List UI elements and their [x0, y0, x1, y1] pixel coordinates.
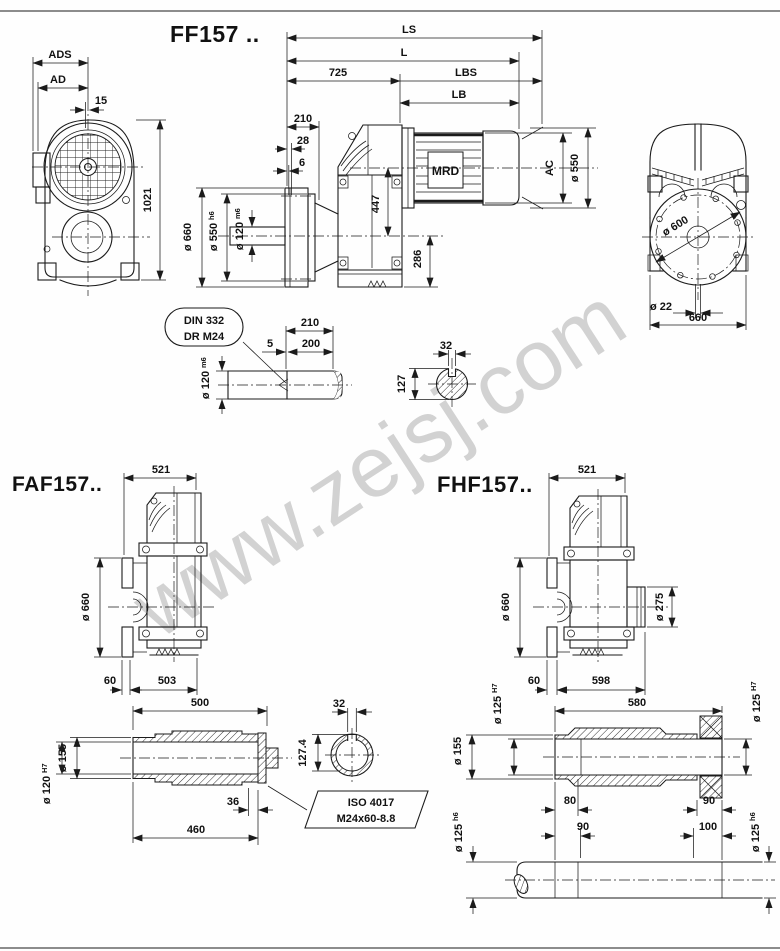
dim-80: 80 [564, 795, 576, 807]
gearbox-dimension-drawing: www.zejsj.com FF157 .. FAF157.. FHF157..… [0, 0, 780, 951]
fhf-dimensions: 521 ø 660 ø 275 60 598 [500, 464, 678, 695]
callout-m24x60: M24x60-8.8 [337, 813, 396, 825]
dim-1021: 1021 [142, 188, 154, 212]
callout-iso4017: ISO 4017 [348, 797, 394, 809]
dim-6: 6 [299, 157, 305, 169]
dim-550h6-suffix: h6 [207, 211, 216, 220]
dim-598: 598 [592, 675, 610, 687]
dim-125h7-right-suffix: H7 [749, 681, 758, 691]
dim-120m6-suffix: m6 [233, 208, 242, 219]
dim-32-faf: 32 [333, 698, 345, 710]
motor: MRD [350, 127, 598, 209]
dim-660: ø 660 [182, 223, 194, 251]
dim-286: 286 [412, 250, 424, 268]
dim-660-width: 660 [689, 312, 707, 324]
dim-lb: LB [452, 89, 467, 101]
dim-125h6-left: ø 125 [453, 824, 465, 852]
dim-36: 36 [227, 796, 239, 808]
dim-503: 503 [158, 675, 176, 687]
motor-brand-label: MRD [432, 164, 460, 178]
dim-155-fhf: ø 155 [452, 737, 464, 765]
fhf-view: 521 ø 660 ø 275 60 598 [500, 464, 678, 695]
dim-lbs: LBS [455, 67, 477, 79]
dim-22: ø 22 [650, 301, 672, 313]
dim-125h6-left-suffix: h6 [451, 812, 460, 821]
faf-shaft-dimensions: 500 ø 155 ø 120 H7 36 460 [40, 697, 273, 845]
title-ff157: FF157 .. [170, 21, 260, 47]
dim-5: 5 [267, 338, 273, 350]
faf-key-section: 32 127.4 [297, 698, 379, 782]
ff-side-view: MRD LS L 725 LBS LB 210 28 6 [182, 24, 598, 287]
dim-275: ø 275 [654, 593, 666, 621]
output-flange [285, 188, 308, 287]
machine-shaft: ø 125 h6 ø 125 h6 [451, 812, 776, 914]
dim-ads: ADS [48, 49, 71, 61]
dim-210: 210 [294, 113, 312, 125]
fhf-shaft-detail: 580 ø 125 H7 ø 155 ø 125 H7 80 90 [451, 681, 776, 914]
dim-120h7: ø 120 [41, 776, 53, 804]
title-fhf157: FHF157.. [437, 472, 533, 497]
dim-120m6: ø 120 [234, 222, 246, 250]
fhf-flange-bottom [547, 627, 557, 657]
rear-view: ø 600 ø 22 660 [642, 124, 755, 330]
dim-90-upper: 90 [703, 795, 715, 807]
fhf-shaft-dimensions: 580 ø 125 H7 ø 155 ø 125 H7 80 90 [452, 681, 763, 860]
callout-din332: DIN 332 [184, 315, 224, 327]
faf-view: 521 ø 660 60 503 [80, 464, 215, 695]
dim-660-fhf: ø 660 [500, 593, 512, 621]
dim-125h7-right: ø 125 [751, 694, 763, 722]
dim-l: L [401, 47, 408, 59]
dim-125h6-right: ø 125 [750, 824, 762, 852]
dim-32: 32 [440, 340, 452, 352]
dim-127: 127 [396, 375, 408, 393]
dim-90-lower: 90 [577, 821, 589, 833]
dim-60-fhf: 60 [528, 675, 540, 687]
dim-200: 200 [302, 338, 320, 350]
dim-ac: AC [544, 160, 556, 176]
dim-725: 725 [329, 67, 347, 79]
dim-210b: 210 [301, 317, 319, 329]
dim-521-faf: 521 [152, 464, 170, 476]
callout-drm24: DR M24 [184, 331, 225, 343]
dim-600: ø 600 [660, 214, 690, 239]
dim-120m6-b: ø 120 [200, 371, 212, 399]
dim-521-fhf: 521 [578, 464, 596, 476]
dim-125h7-left-suffix: H7 [490, 683, 499, 693]
dim-125h6-right-suffix: h6 [748, 812, 757, 821]
dim-15: 15 [95, 95, 107, 107]
dim-120m6-b-suffix: m6 [199, 357, 208, 368]
dim-120h7-suffix: H7 [40, 763, 49, 773]
title-faf157: FAF157.. [12, 473, 102, 496]
dim-580: 580 [628, 697, 646, 709]
dim-660-faf: ø 660 [80, 593, 92, 621]
dim-28: 28 [297, 135, 309, 147]
catalog-drawing-page: www.zejsj.com FF157 .. FAF157.. FHF157..… [0, 0, 780, 951]
dim-447: 447 [370, 195, 382, 213]
faf-flange-bottom [122, 627, 133, 657]
dim-125h7-left: ø 125 [492, 696, 504, 724]
dim-60-faf: 60 [104, 675, 116, 687]
dim-550h6: ø 550 [208, 223, 220, 251]
dim-127-4: 127.4 [297, 738, 309, 766]
dim-460: 460 [187, 824, 205, 836]
dim-ad: AD [50, 74, 66, 86]
dim-155-faf: ø 155 [57, 744, 69, 772]
iso-callout: ISO 4017 M24x60-8.8 [268, 786, 428, 828]
fhf-flange-top [547, 558, 557, 588]
ff-dimensions: LS L 725 LBS LB 210 28 6 ø 660 ø 550 h6 … [182, 24, 596, 287]
dim-ls: LS [402, 24, 416, 36]
dim-100: 100 [699, 821, 717, 833]
faf-shaft-detail: 500 ø 155 ø 120 H7 36 460 32 [40, 697, 428, 845]
dim-500: 500 [191, 697, 209, 709]
front-view: ADS AD 15 1021 [32, 49, 166, 296]
dim-550-right: ø 550 [569, 154, 581, 182]
